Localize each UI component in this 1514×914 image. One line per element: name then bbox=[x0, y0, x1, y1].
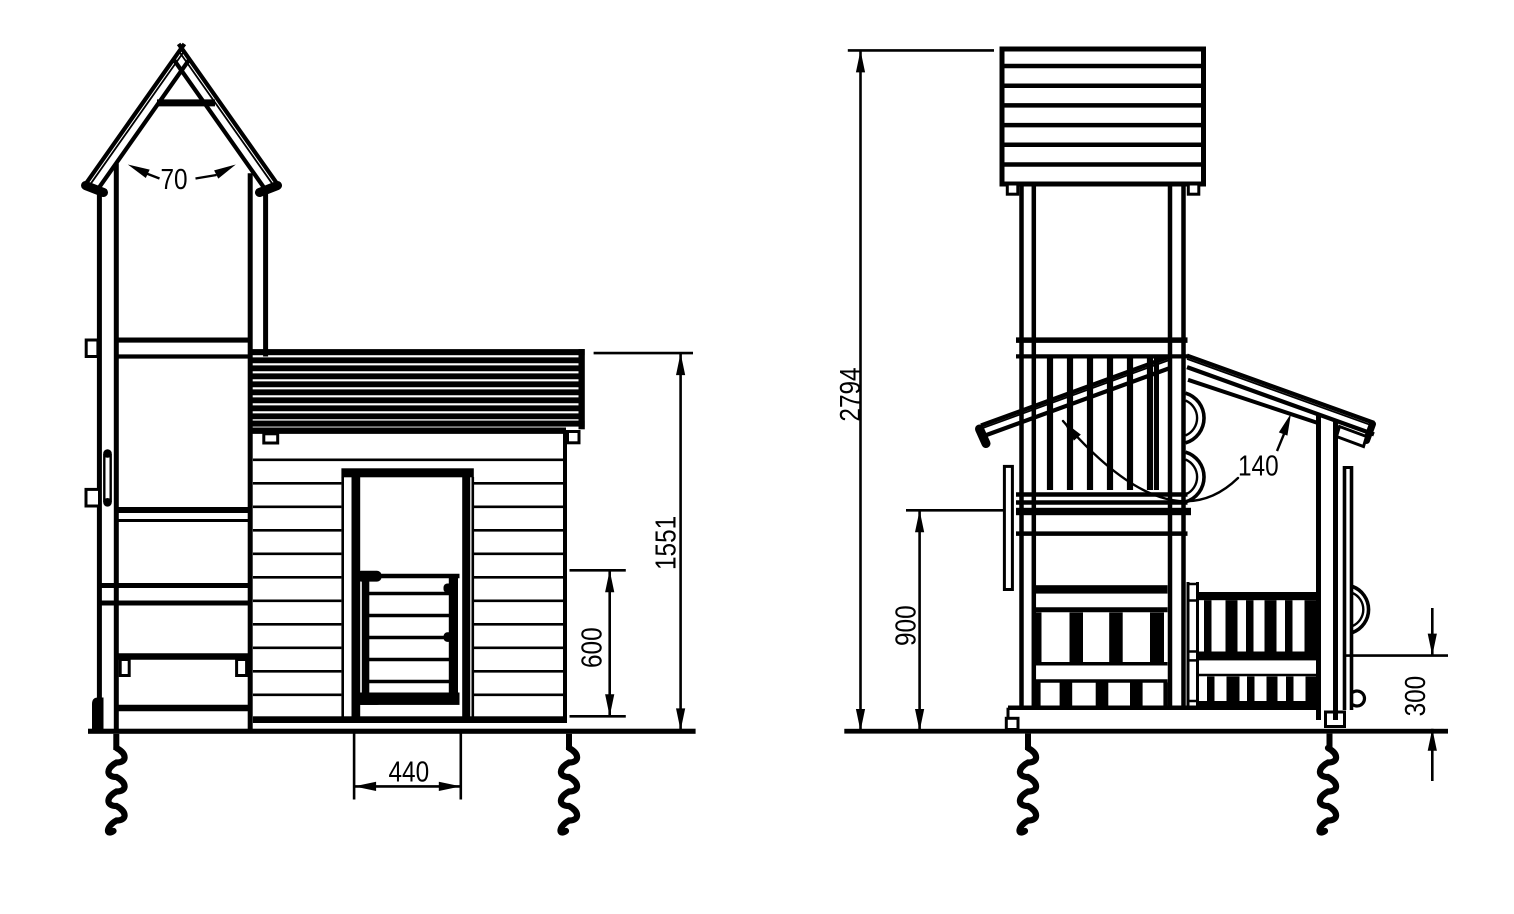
svg-text:2794: 2794 bbox=[834, 367, 866, 421]
svg-text:1551: 1551 bbox=[650, 516, 682, 570]
svg-text:140: 140 bbox=[1238, 450, 1279, 482]
svg-text:300: 300 bbox=[1399, 676, 1431, 717]
svg-text:900: 900 bbox=[890, 605, 922, 646]
svg-text:440: 440 bbox=[389, 756, 430, 788]
svg-text:70: 70 bbox=[161, 163, 188, 195]
svg-text:600: 600 bbox=[576, 627, 608, 668]
